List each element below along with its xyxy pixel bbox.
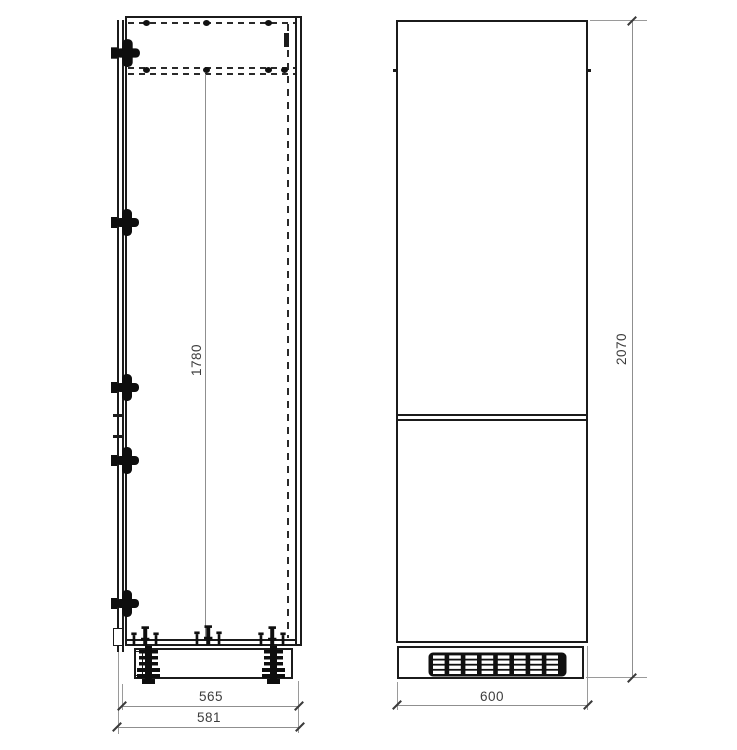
extension-line	[590, 20, 647, 21]
cabinet-front-view: 600 2070	[0, 0, 737, 750]
height-dim-line	[632, 21, 633, 678]
door-split-line	[398, 414, 586, 416]
height-dim-label: 2070	[614, 319, 630, 379]
extension-line	[587, 646, 588, 710]
width-dim-line	[397, 705, 588, 706]
extension-line	[586, 677, 647, 678]
door-split-line	[398, 419, 586, 421]
front-outline	[396, 20, 588, 643]
edge-rail-mark	[393, 69, 398, 72]
width-dim-label: 600	[462, 689, 522, 705]
drawing-canvas: 1780 565 5	[0, 0, 737, 750]
vent-grille	[428, 652, 567, 677]
edge-rail-mark	[586, 69, 591, 72]
